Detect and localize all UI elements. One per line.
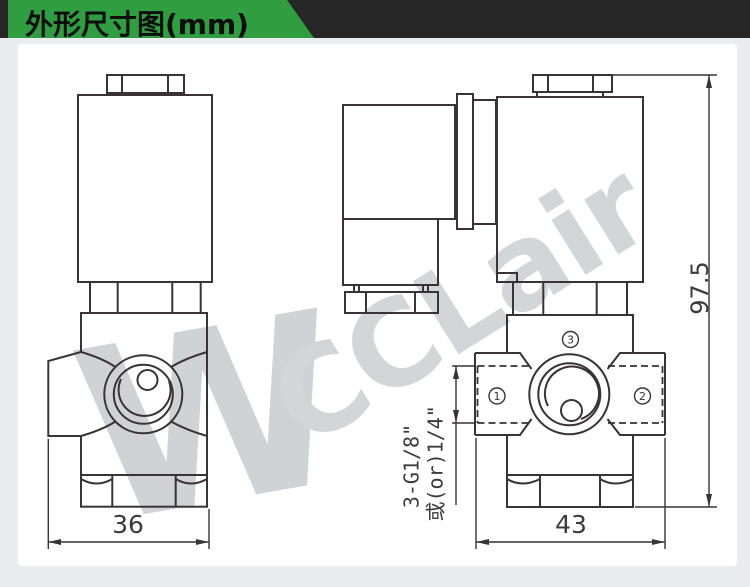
thread-size-line2: 或(or)1/4" <box>424 411 448 522</box>
dimension-drawing: 1 2 3 <box>0 0 750 587</box>
side-coil <box>497 97 643 282</box>
thread-size-label: 3-G1/8" 或(or)1/4" <box>400 411 448 522</box>
front-valve-body <box>48 313 207 475</box>
port-number-1-label: 1 <box>494 390 501 403</box>
port-number-2: 2 <box>635 388 651 404</box>
port-number-3-label: 3 <box>567 334 574 347</box>
port-number-2-label: 2 <box>639 390 646 403</box>
front-bottom-hex <box>81 475 207 507</box>
front-top-nut <box>107 75 184 96</box>
port-number-1: 1 <box>489 388 505 404</box>
side-bottom-hex <box>507 475 633 507</box>
front-view <box>48 75 212 549</box>
thread-size-line1: 3-G1/8" <box>400 411 424 522</box>
front-coil <box>78 95 212 282</box>
side-neck <box>513 282 627 315</box>
front-neck <box>90 282 201 313</box>
front-width-label: 36 <box>88 510 168 539</box>
side-top-nut <box>533 75 612 97</box>
port-size-dimension <box>452 366 476 505</box>
side-width-label: 43 <box>531 510 611 539</box>
page: 外形尺寸图(mm) W CCLair <box>0 0 750 587</box>
height-label: 97.5 <box>686 248 714 328</box>
side-connector <box>343 94 496 313</box>
port-number-3: 3 <box>563 332 579 348</box>
